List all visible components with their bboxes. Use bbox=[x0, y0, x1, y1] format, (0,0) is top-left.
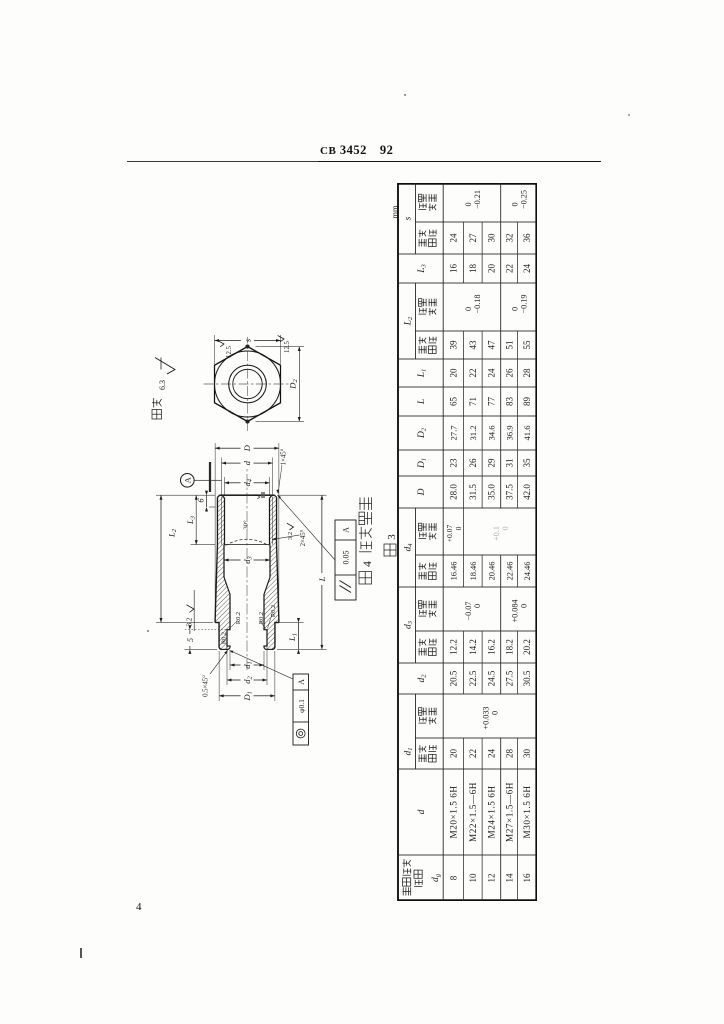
svg-text:20: 20 bbox=[449, 749, 459, 759]
svg-text:D2: D2 bbox=[288, 379, 300, 390]
svg-text:34.6: 34.6 bbox=[487, 425, 497, 441]
svg-text:20: 20 bbox=[449, 368, 459, 378]
svg-text:3.2: 3.2 bbox=[287, 532, 294, 540]
svg-text:20.46: 20.46 bbox=[488, 562, 497, 581]
svg-text:6.3: 6.3 bbox=[158, 380, 167, 390]
svg-text:0: 0 bbox=[473, 604, 482, 608]
svg-text:30°: 30° bbox=[243, 520, 250, 530]
svg-text:22: 22 bbox=[468, 749, 478, 758]
svg-text:0: 0 bbox=[464, 202, 473, 206]
svg-text:L1: L1 bbox=[287, 633, 299, 642]
svg-text:0: 0 bbox=[501, 526, 510, 530]
svg-text:16.2: 16.2 bbox=[487, 639, 497, 655]
svg-text:28: 28 bbox=[504, 749, 514, 759]
svg-text:+0.07: +0.07 bbox=[445, 525, 454, 543]
svg-text:4: 4 bbox=[362, 561, 374, 567]
svg-text:L: L bbox=[417, 399, 427, 405]
svg-text:D1: D1 bbox=[242, 691, 254, 701]
svg-text:d1: d1 bbox=[242, 661, 254, 669]
svg-text:A: A bbox=[183, 476, 193, 483]
svg-text:0: 0 bbox=[510, 307, 519, 311]
svg-text:0: 0 bbox=[519, 604, 528, 608]
svg-text:d4: d4 bbox=[404, 543, 415, 552]
svg-text:M24×1.5 6H: M24×1.5 6H bbox=[487, 785, 497, 838]
svg-text:23: 23 bbox=[449, 458, 459, 468]
svg-text:s: s bbox=[404, 216, 414, 220]
svg-text:−0.19: −0.19 bbox=[519, 295, 528, 314]
svg-text:φ0.1: φ0.1 bbox=[297, 699, 306, 713]
svg-text:26: 26 bbox=[468, 458, 478, 468]
svg-text:65: 65 bbox=[449, 397, 459, 407]
svg-text:A: A bbox=[297, 679, 306, 685]
svg-text:20.5: 20.5 bbox=[449, 670, 459, 686]
svg-text:22: 22 bbox=[468, 369, 478, 378]
svg-text:83: 83 bbox=[504, 397, 514, 407]
svg-text:0.05: 0.05 bbox=[342, 551, 351, 565]
svg-text:36.9: 36.9 bbox=[504, 425, 514, 440]
svg-text:31.2: 31.2 bbox=[468, 425, 478, 440]
svg-text:51: 51 bbox=[504, 341, 514, 350]
svg-text:M30×1.5 6H: M30×1.5 6H bbox=[522, 785, 532, 838]
svg-text:M22×1.5—6H: M22×1.5—6H bbox=[468, 782, 478, 842]
svg-text:2×45°: 2×45° bbox=[300, 529, 307, 546]
svg-text:24.5: 24.5 bbox=[487, 670, 497, 686]
svg-text:18: 18 bbox=[468, 264, 478, 274]
svg-text:R0.2: R0.2 bbox=[221, 632, 228, 644]
svg-text:24: 24 bbox=[487, 749, 497, 759]
svg-text:89: 89 bbox=[522, 397, 532, 407]
svg-text:−0.07: −0.07 bbox=[464, 602, 473, 621]
svg-text:41.6: 41.6 bbox=[522, 425, 532, 441]
svg-text:27: 27 bbox=[468, 233, 478, 243]
svg-text:d2: d2 bbox=[417, 674, 428, 683]
svg-text:27.7: 27.7 bbox=[449, 425, 459, 441]
svg-text:12.5: 12.5 bbox=[226, 345, 233, 357]
svg-text:30: 30 bbox=[487, 233, 497, 243]
svg-text:0.5×45°: 0.5×45° bbox=[203, 675, 210, 697]
svg-text:27.5: 27.5 bbox=[504, 670, 514, 686]
svg-text:−0.25: −0.25 bbox=[519, 190, 528, 209]
svg-text:D1: D1 bbox=[417, 458, 428, 469]
svg-text:24: 24 bbox=[522, 264, 532, 274]
svg-text:22.5: 22.5 bbox=[468, 670, 478, 686]
svg-text:0: 0 bbox=[464, 307, 473, 311]
svg-text:32: 32 bbox=[504, 234, 514, 243]
svg-text:L3: L3 bbox=[417, 263, 428, 273]
svg-text:26: 26 bbox=[504, 368, 514, 378]
svg-text:14.2: 14.2 bbox=[468, 639, 478, 655]
svg-text:R0.2: R0.2 bbox=[270, 605, 277, 617]
svg-text:8: 8 bbox=[449, 875, 459, 880]
svg-text:3.2: 3.2 bbox=[186, 617, 194, 626]
svg-text:31.5: 31.5 bbox=[468, 484, 478, 500]
svg-text:d1: d1 bbox=[404, 748, 415, 756]
svg-text:24: 24 bbox=[487, 368, 497, 378]
svg-text:mm: mm bbox=[390, 205, 400, 219]
svg-text:L2: L2 bbox=[167, 528, 179, 538]
svg-text:29: 29 bbox=[487, 458, 497, 468]
svg-text:L1: L1 bbox=[417, 369, 428, 379]
svg-text:30.5: 30.5 bbox=[522, 670, 532, 686]
svg-text:dg: dg bbox=[431, 873, 442, 882]
svg-text:47: 47 bbox=[487, 340, 497, 350]
svg-text:31: 31 bbox=[504, 459, 514, 468]
svg-text:35: 35 bbox=[522, 458, 532, 468]
svg-text:+0.084: +0.084 bbox=[510, 599, 519, 622]
svg-text:0: 0 bbox=[510, 202, 519, 206]
svg-text:37.5: 37.5 bbox=[504, 484, 514, 500]
svg-text:22: 22 bbox=[504, 264, 514, 273]
svg-text:24: 24 bbox=[449, 233, 459, 243]
svg-text:77: 77 bbox=[487, 397, 497, 407]
svg-text:−0.21: −0.21 bbox=[473, 190, 482, 209]
svg-text:22.46: 22.46 bbox=[505, 562, 514, 581]
svg-text:36: 36 bbox=[522, 233, 532, 243]
svg-text:d2: d2 bbox=[242, 676, 254, 684]
svg-text:R0.2: R0.2 bbox=[258, 612, 265, 624]
svg-text:d3: d3 bbox=[242, 556, 254, 564]
svg-text:24.46: 24.46 bbox=[523, 562, 532, 581]
svg-text:16: 16 bbox=[449, 264, 459, 274]
svg-text:d: d bbox=[242, 460, 252, 465]
svg-text:39: 39 bbox=[449, 340, 459, 350]
svg-text:43: 43 bbox=[468, 340, 478, 350]
svg-text:12.2: 12.2 bbox=[449, 639, 459, 655]
svg-text:L3: L3 bbox=[185, 515, 197, 525]
svg-text:6: 6 bbox=[196, 498, 206, 503]
svg-text:42.0: 42.0 bbox=[522, 484, 532, 500]
svg-text:d3: d3 bbox=[404, 620, 415, 629]
svg-text:16.46: 16.46 bbox=[450, 562, 459, 581]
svg-text:1×45°: 1×45° bbox=[281, 448, 288, 465]
svg-text:D2: D2 bbox=[417, 427, 428, 439]
svg-text:71: 71 bbox=[468, 397, 478, 406]
svg-text:D: D bbox=[417, 488, 427, 496]
svg-text:0: 0 bbox=[491, 711, 500, 715]
svg-text:20: 20 bbox=[487, 264, 497, 274]
svg-text:28: 28 bbox=[522, 368, 532, 378]
svg-text:A: A bbox=[342, 527, 351, 533]
svg-text:s: s bbox=[243, 338, 253, 342]
svg-text:14: 14 bbox=[504, 873, 514, 883]
svg-text:18.2: 18.2 bbox=[504, 639, 514, 655]
svg-text:d4: d4 bbox=[242, 478, 254, 486]
svg-text:+0.1: +0.1 bbox=[492, 526, 501, 541]
svg-text:+0.033: +0.033 bbox=[482, 706, 491, 729]
svg-text:L2: L2 bbox=[404, 316, 415, 326]
svg-text:D: D bbox=[242, 444, 252, 452]
svg-text:d: d bbox=[417, 809, 427, 814]
svg-text:12: 12 bbox=[487, 874, 497, 883]
svg-text:18.46: 18.46 bbox=[469, 562, 478, 581]
svg-text:55: 55 bbox=[522, 340, 532, 350]
svg-text:−0.18: −0.18 bbox=[473, 295, 482, 314]
svg-text:30: 30 bbox=[522, 749, 532, 759]
svg-text:M20×1.5 6H: M20×1.5 6H bbox=[449, 785, 459, 838]
svg-text:3: 3 bbox=[386, 534, 398, 540]
svg-text:10: 10 bbox=[468, 873, 478, 883]
svg-text:0: 0 bbox=[454, 526, 463, 530]
svg-text:28.0: 28.0 bbox=[449, 484, 459, 500]
svg-text:20.2: 20.2 bbox=[522, 639, 532, 655]
svg-text:5: 5 bbox=[186, 638, 195, 642]
svg-text:35.0: 35.0 bbox=[487, 484, 497, 500]
svg-text:M27×1.5—6H: M27×1.5—6H bbox=[504, 782, 514, 842]
svg-text:16: 16 bbox=[522, 873, 532, 883]
svg-text:L: L bbox=[317, 576, 327, 582]
